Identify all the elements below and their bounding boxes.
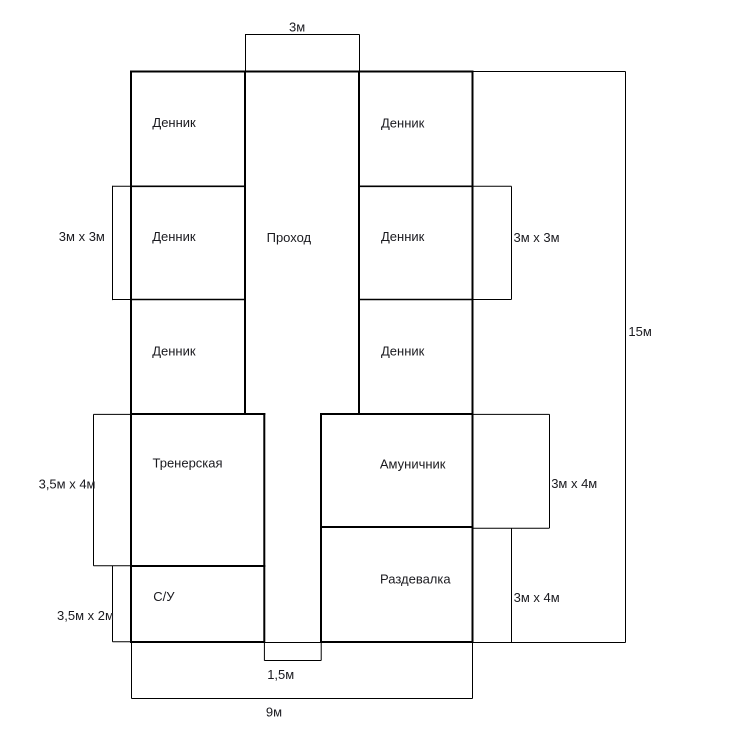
- svg-text:Денник: Денник: [152, 115, 196, 130]
- svg-text:3м x 4м: 3м x 4м: [514, 590, 560, 605]
- svg-text:Тренерская: Тренерская: [153, 456, 223, 471]
- svg-text:Денник: Денник: [152, 229, 196, 244]
- svg-text:3,5м x 4м: 3,5м x 4м: [39, 476, 96, 491]
- svg-text:Раздевалка: Раздевалка: [380, 571, 451, 586]
- svg-text:Проход: Проход: [267, 230, 312, 245]
- svg-text:3м x 3м: 3м x 3м: [514, 230, 560, 245]
- svg-text:3м x 3м: 3м x 3м: [59, 229, 105, 244]
- svg-text:15м: 15м: [628, 324, 651, 339]
- svg-text:9м: 9м: [266, 704, 282, 719]
- svg-text:Денник: Денник: [381, 343, 425, 358]
- svg-text:3,5м x 2м: 3,5м x 2м: [57, 608, 114, 623]
- svg-text:3м x 4м: 3м x 4м: [551, 476, 597, 491]
- svg-text:С/У: С/У: [153, 589, 175, 604]
- svg-text:Денник: Денник: [381, 229, 425, 244]
- svg-text:3м: 3м: [289, 20, 305, 35]
- svg-text:Денник: Денник: [381, 115, 425, 130]
- svg-text:1,5м: 1,5м: [267, 667, 294, 682]
- svg-text:Амуничник: Амуничник: [380, 457, 446, 472]
- svg-text:Денник: Денник: [152, 343, 196, 358]
